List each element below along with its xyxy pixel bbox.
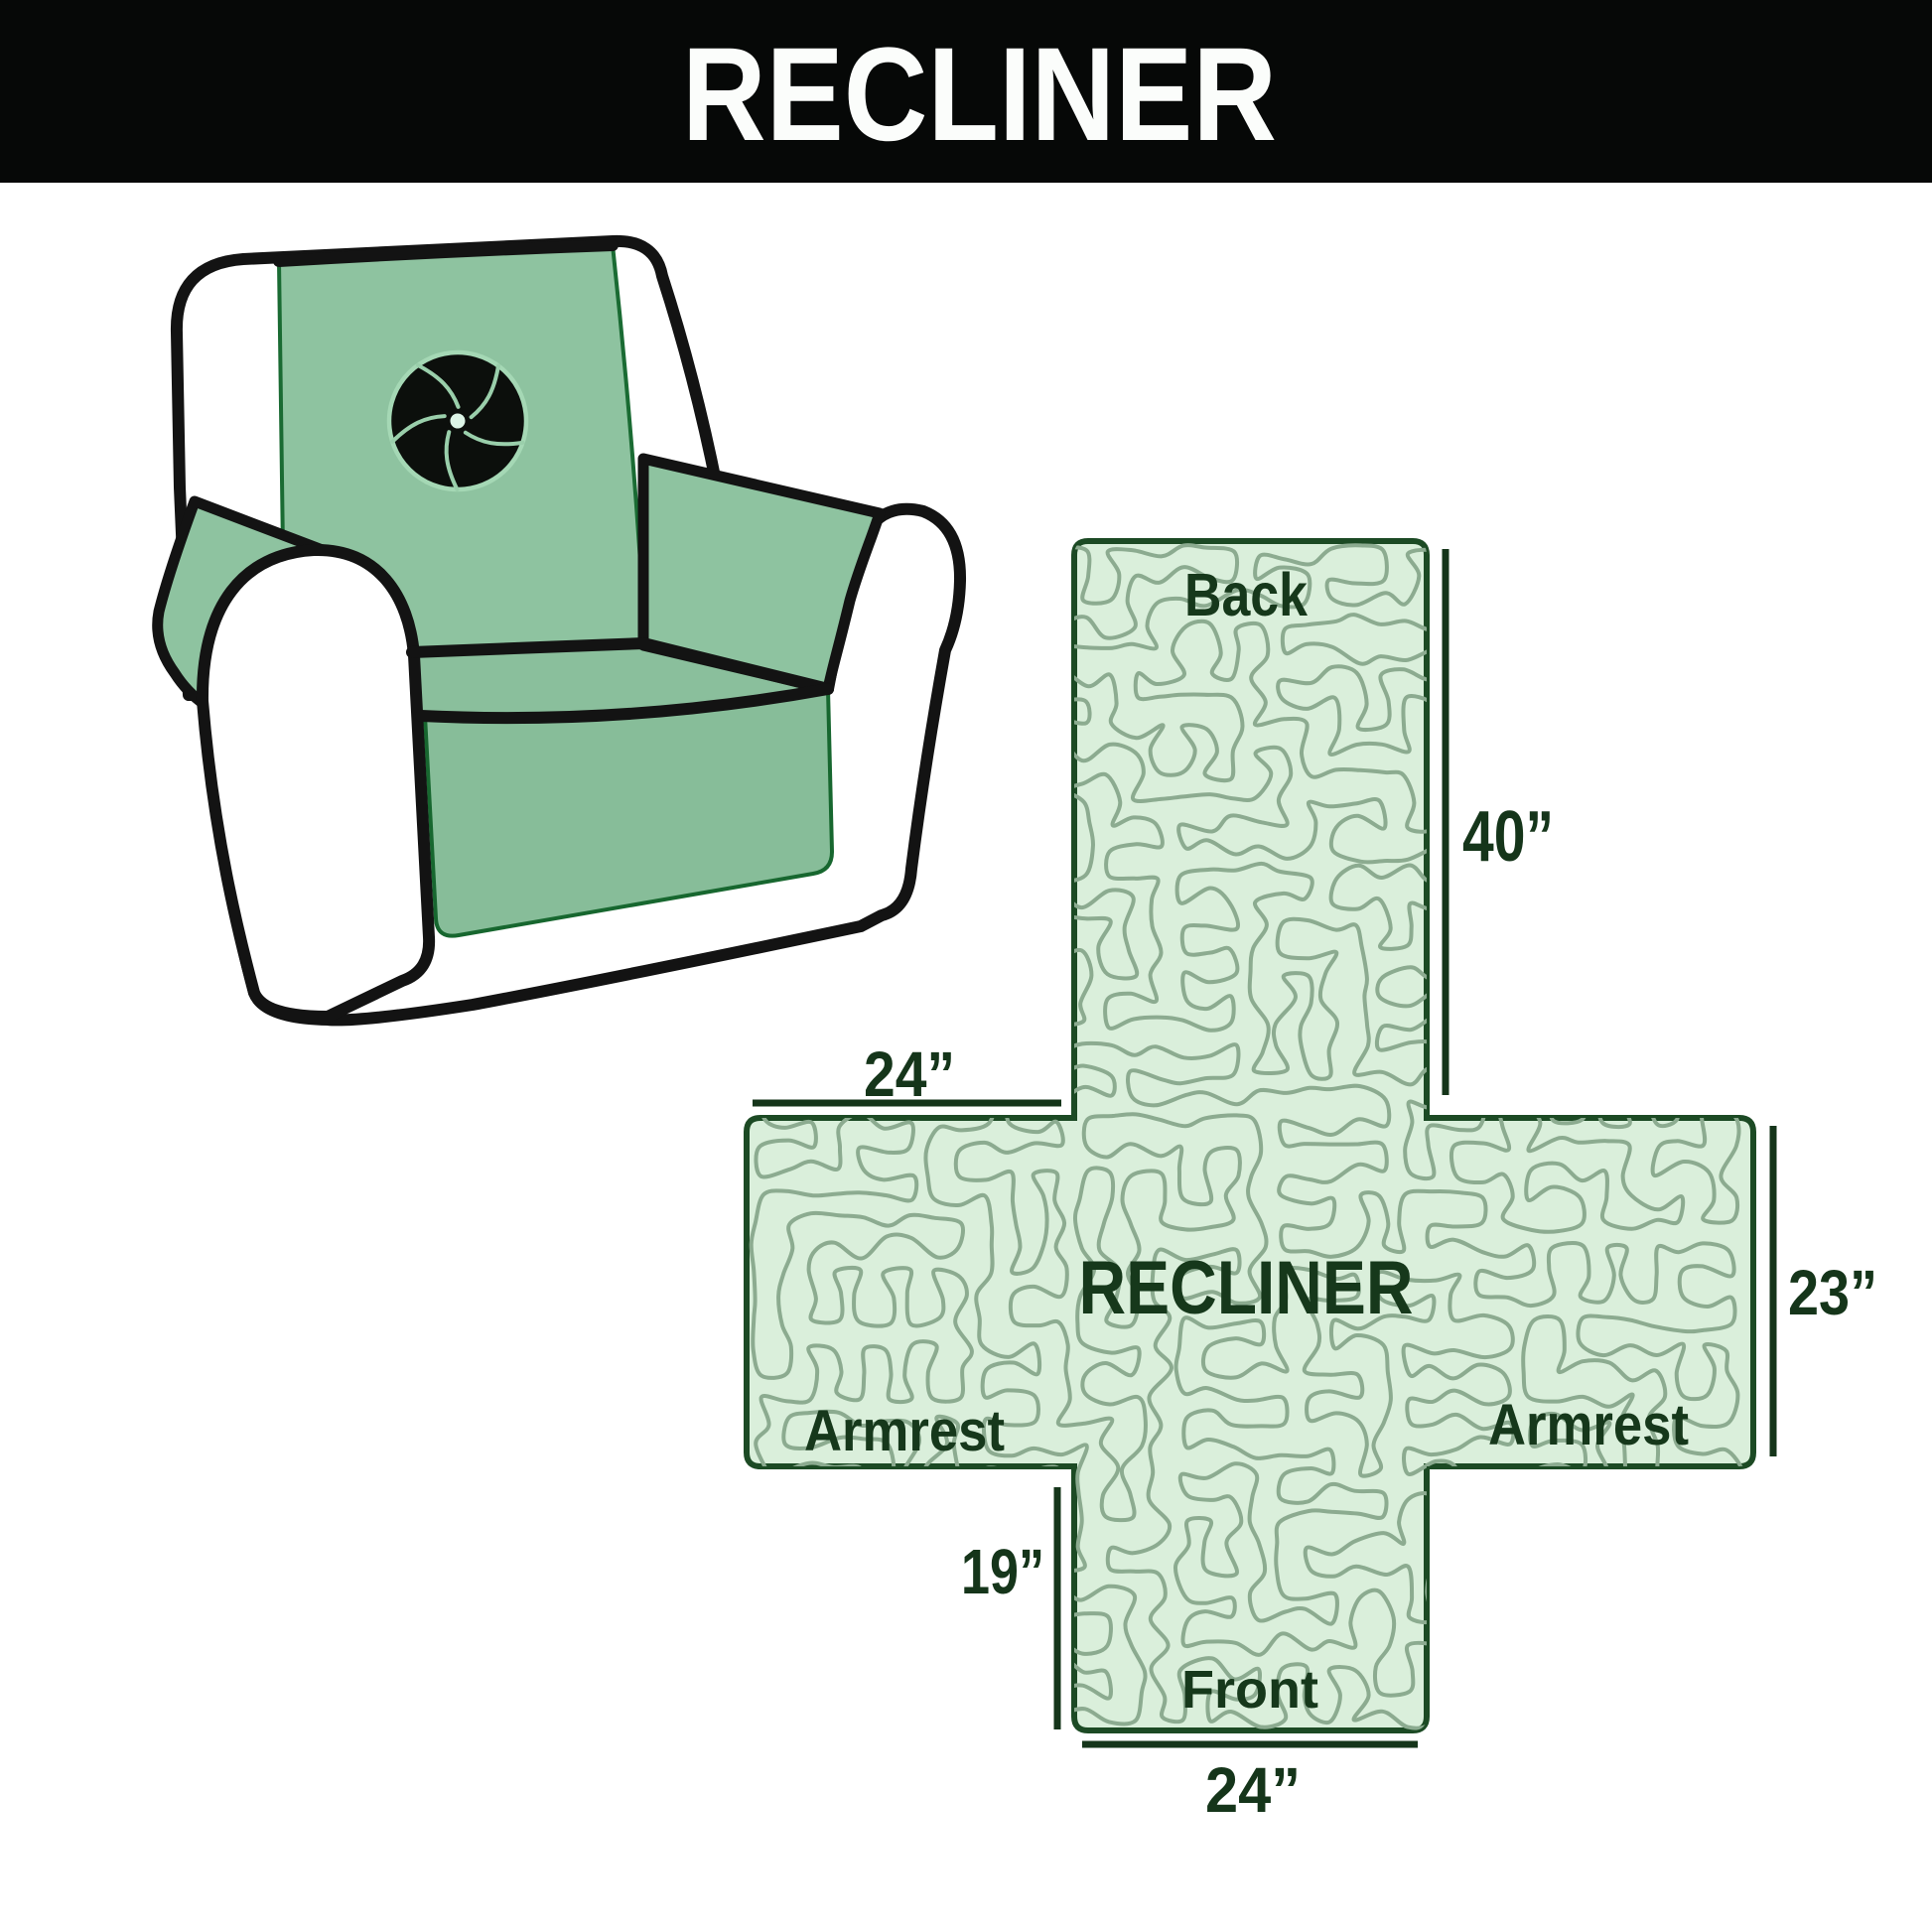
svg-text:RECLINER: RECLINER xyxy=(682,21,1277,169)
svg-text:24”: 24” xyxy=(1205,1754,1301,1826)
svg-text:Armrest: Armrest xyxy=(804,1399,1005,1463)
svg-text:Back: Back xyxy=(1184,561,1308,628)
svg-text:40”: 40” xyxy=(1462,797,1554,877)
svg-text:Front: Front xyxy=(1181,1660,1318,1720)
svg-text:RECLINER: RECLINER xyxy=(1079,1246,1414,1330)
svg-text:23”: 23” xyxy=(1788,1257,1877,1328)
svg-text:24”: 24” xyxy=(864,1038,955,1110)
svg-text:Armrest: Armrest xyxy=(1488,1393,1689,1457)
svg-text:19”: 19” xyxy=(961,1536,1044,1607)
